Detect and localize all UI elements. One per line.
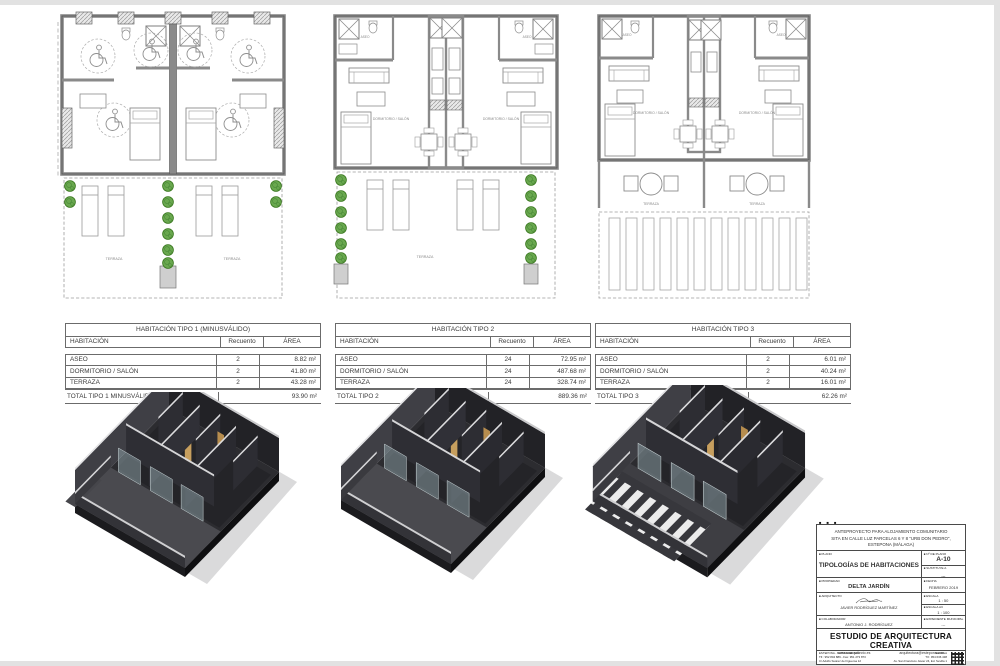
table-cell: 41.80 m² — [259, 366, 320, 376]
table-row: ASEO28.82 m² — [65, 354, 321, 366]
office2-line3: Av. San Francisco Javier 24, Ed. Sevilla… — [883, 660, 947, 664]
colaborador-label: COLABORADOR — [819, 617, 846, 621]
table-row: DORMITORIO / SALÓN240.24 m² — [595, 366, 851, 377]
table-cell: DORMITORIO / SALÓN — [336, 366, 486, 376]
table-cell: 2 — [216, 366, 259, 376]
col-habitacion: HABITACIÓN — [336, 337, 490, 347]
table-cell: 487.68 m² — [529, 366, 590, 376]
table-title: HABITACIÓN TIPO 2 — [335, 323, 591, 337]
rooms-tipo1 — [58, 12, 284, 178]
svg-text:ASEO: ASEO — [777, 33, 786, 37]
pergola-plan — [599, 212, 809, 298]
table-cell: 6.01 m² — [789, 355, 850, 365]
table-cell: 24 — [486, 366, 529, 376]
col-area: ÁREA — [533, 337, 590, 347]
table-cell: 8.82 m² — [259, 355, 320, 365]
table-title: HABITACIÓN TIPO 3 — [595, 323, 851, 337]
office1-line3: C/ Adolfo Suárez de Figueroa 12 — [819, 660, 883, 664]
svg-text:ASEO: ASEO — [523, 35, 532, 39]
rooms-tipo2: DORMITORIO / SALÓN DORMITORIO / SALÓN AS… — [335, 16, 557, 168]
table-body: ASEO26.01 m²DORMITORIO / SALÓN240.24 m²T… — [595, 354, 851, 389]
table-cell: ASEO — [66, 355, 216, 365]
table-row: DORMITORIO / SALÓN24487.68 m² — [335, 366, 591, 377]
table-header: HABITACIÓN Recuento ÁREA — [65, 337, 321, 348]
table-cell: 24 — [486, 355, 529, 365]
plano-row: PLANO TIPOLOGÍAS DE HABITACIONES Nº DE P… — [817, 551, 965, 578]
page-edge-top — [0, 0, 1000, 5]
table-body: ASEO28.82 m²DORMITORIO / SALÓN241.80 m²T… — [65, 354, 321, 389]
table-cell: 40.24 m² — [789, 366, 850, 376]
floor-plan-tipo2: DORMITORIO / SALÓN DORMITORIO / SALÓN AS… — [329, 8, 563, 304]
svg-text:ASEO: ASEO — [361, 35, 370, 39]
svg-text:DORMITORIO / SALÓN: DORMITORIO / SALÓN — [739, 110, 776, 115]
firm-name: ESTUDIO DE ARQUITECTURA CREATIVA — [817, 629, 965, 650]
colaborador-row: COLABORADOR ANTONIO J. RODRÍGUEZ EXPEDIE… — [817, 616, 965, 629]
svg-text:DORMITORIO / SALÓN: DORMITORIO / SALÓN — [373, 116, 410, 121]
svg-text:ASEO: ASEO — [623, 33, 632, 37]
fecha-label: FECHA — [924, 579, 937, 583]
table-cell: 2 — [216, 355, 259, 365]
axon-view-tipo3 — [570, 385, 830, 593]
table-cell: 72.95 m² — [529, 355, 590, 365]
col-area: ÁREA — [263, 337, 320, 347]
table-cell: TERRAZA — [336, 378, 486, 388]
drawing-sheet: { "plan_labels": { "terraza": "TERRAZA",… — [0, 0, 1000, 666]
plano-value: TIPOLOGÍAS DE HABITACIONES — [817, 551, 921, 569]
table-row: DORMITORIO / SALÓN241.80 m² — [65, 366, 321, 377]
propiedad-cell: PROPIEDAD DELTA JARDÍN — [817, 578, 922, 592]
project-description: ANTEPROYECTO PARA ALOJAMIENTO COMUNITARI… — [817, 525, 965, 551]
table-cell: DORMITORIO / SALÓN — [596, 366, 746, 376]
signature — [854, 596, 884, 606]
plano-cell: PLANO TIPOLOGÍAS DE HABITACIONES — [817, 551, 922, 577]
svg-text:TERRAZA: TERRAZA — [643, 202, 660, 206]
sustituye-label: SUSTITUYE A — [924, 566, 947, 570]
qr-code — [951, 652, 964, 665]
num-plano-cell: Nº DE PLANO A-10 SUSTITUYE A --- — [922, 551, 965, 577]
col-habitacion: HABITACIÓN — [596, 337, 750, 347]
footer-row: ESTEPONA - COSTA DEL SOL Tlf.: 952 804 8… — [817, 651, 965, 666]
fecha-cell: FECHA FEBRERO 2019 — [922, 578, 965, 592]
table-cell: 2 — [746, 366, 789, 376]
svg-text:TERRAZA: TERRAZA — [106, 257, 123, 261]
escala-label: ESCALA — [924, 594, 939, 598]
table-cell: ASEO — [596, 355, 746, 365]
propiedad-row: PROPIEDAD DELTA JARDÍN FECHA FEBRERO 201… — [817, 578, 965, 593]
svg-text:TERRAZA: TERRAZA — [749, 202, 766, 206]
table-row: ASEO26.01 m² — [595, 354, 851, 366]
col-recuento: Recuento — [750, 337, 793, 347]
axon-view-tipo2 — [318, 388, 570, 588]
table-body: ASEO2472.95 m²DORMITORIO / SALÓN24487.68… — [335, 354, 591, 389]
escala-a3-label: ESCALA A3 — [924, 605, 943, 609]
svg-text:TERRAZA: TERRAZA — [417, 255, 434, 259]
svg-text:TERRAZA: TERRAZA — [224, 257, 241, 261]
terrace-tipo2: TERRAZA — [334, 172, 555, 298]
table-cell: TERRAZA — [66, 378, 216, 388]
firm-row: ESTUDIO DE ARQUITECTURA CREATIVA www.sua… — [817, 629, 965, 651]
project-line3: ESTEPONA (MÁLAGA) — [817, 542, 965, 549]
arquitecto-label: ARQUITECTO — [819, 594, 842, 598]
title-block: ■ ■ ■ ANTEPROYECTO PARA ALOJAMIENTO COMU… — [816, 524, 966, 665]
table-cell: 24 — [486, 378, 529, 388]
table-header: HABITACIÓN Recuento ÁREA — [335, 337, 591, 348]
table-cell: 43.28 m² — [259, 378, 320, 388]
col-habitacion: HABITACIÓN — [66, 337, 220, 347]
table-title: HABITACIÓN TIPO 1 (MINUSVÁLIDO) — [65, 323, 321, 337]
table-row: ASEO2472.95 m² — [335, 354, 591, 366]
col-recuento: Recuento — [220, 337, 263, 347]
arquitecto-cell: ARQUITECTO JAVIER RODRÍGUEZ MARTÍNEZ — [817, 593, 922, 615]
svg-text:DORMITORIO / SALÓN: DORMITORIO / SALÓN — [633, 110, 670, 115]
table-cell: 2 — [746, 355, 789, 365]
floor-plan-tipo3: DORMITORIO / SALÓN DORMITORIO / SALÓN AS… — [593, 8, 815, 304]
escala-cell: ESCALA 1 : 50 ESCALA A3 1 : 100 — [922, 593, 965, 615]
arquitecto-value: JAVIER RODRÍGUEZ MARTÍNEZ — [817, 606, 921, 610]
terrace-tipo1: TERRAZA TERRAZA — [64, 178, 282, 298]
plano-label: PLANO — [819, 552, 832, 556]
table-cell: ASEO — [336, 355, 486, 365]
office-estepona: ESTEPONA - COSTA DEL SOL Tlf.: 952 804 8… — [819, 652, 883, 665]
col-recuento: Recuento — [490, 337, 533, 347]
page-edge-right — [994, 0, 1000, 666]
project-line1: ANTEPROYECTO PARA ALOJAMIENTO COMUNITARI… — [817, 529, 965, 536]
terrace-tipo3: TERRAZA TERRAZA — [599, 160, 809, 298]
expediente-cell: EXPEDIENTE MUNICIPAL --- — [922, 616, 965, 628]
arquitecto-row: ARQUITECTO JAVIER RODRÍGUEZ MARTÍNEZ ESC… — [817, 593, 965, 616]
num-plano-label: Nº DE PLANO — [924, 552, 946, 556]
project-line2: SITA EN CALLE LUZ PARCELAS 6 Y 8 "URB DO… — [817, 536, 965, 543]
rooms-tipo3: DORMITORIO / SALÓN DORMITORIO / SALÓN AS… — [599, 16, 809, 160]
table-cell: 2 — [216, 378, 259, 388]
col-area: ÁREA — [793, 337, 850, 347]
table-header: HABITACIÓN Recuento ÁREA — [595, 337, 851, 348]
table-row: TERRAZA243.28 m² — [65, 378, 321, 389]
expediente-label: EXPEDIENTE MUNICIPAL — [924, 617, 964, 621]
axon-view-tipo1 — [52, 392, 304, 592]
table-cell: DORMITORIO / SALÓN — [66, 366, 216, 376]
propiedad-label: PROPIEDAD — [819, 579, 840, 583]
floor-plan-tipo1: TERRAZA TERRAZA — [56, 8, 290, 304]
colaborador-cell: COLABORADOR ANTONIO J. RODRÍGUEZ — [817, 616, 922, 628]
svg-text:DORMITORIO / SALÓN: DORMITORIO / SALÓN — [483, 116, 520, 121]
